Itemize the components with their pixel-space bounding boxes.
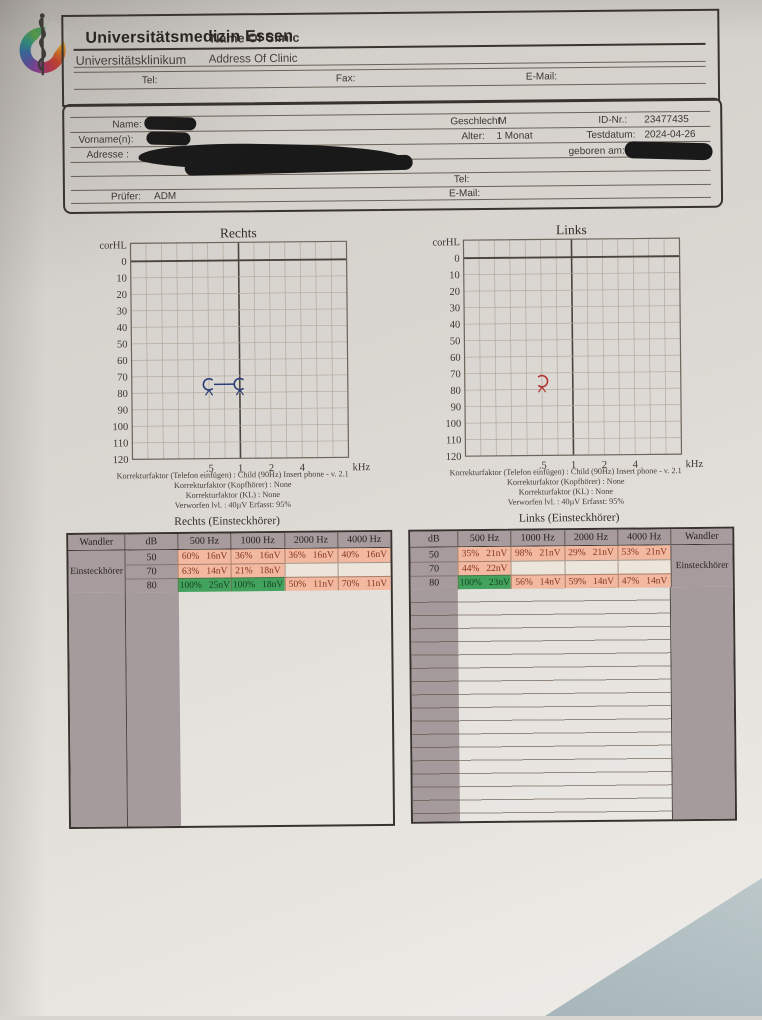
grid-v [238,242,240,458]
patient-tel-label: Tel: [454,174,470,185]
result-nv: 21nV [539,548,560,558]
result-cell [617,559,670,574]
grid-v [510,240,512,456]
result-cell: 100%23nV [458,575,511,590]
db-value: 80 [125,578,178,593]
y-tick-label: 100 [445,419,461,430]
grid-h [131,259,347,261]
grid-v [161,243,163,459]
name-redaction [144,117,196,131]
alter-label: Alter: [461,131,484,142]
pruefer-label: Prüfer: [111,191,141,202]
result-cell: 56%14nV [511,574,564,589]
chart-title: Links [556,224,587,238]
result-cell: 35%21nV [457,547,510,562]
grid-v [177,243,179,459]
wandler-header: Wandler [68,534,124,550]
geboren-redaction [624,141,712,160]
result-nv: 18nV [260,565,281,575]
result-nv: 14nV [593,576,614,586]
grid-v [494,240,496,456]
grid-h [464,256,680,258]
grid-v [602,239,604,455]
y-tick-label: 10 [449,270,460,281]
y-tick-label: 20 [116,290,127,301]
chart-title: Rechts [220,227,257,241]
result-cell: 36%16nV [231,549,284,564]
y-tick-label: 110 [446,435,461,446]
result-nv: 14nV [206,566,227,576]
y-axis-label: corHL [99,240,127,251]
grid-v [146,243,148,459]
table-body: 5035%21nV98%21nV29%21nV53%21nVEinsteckhö… [410,545,732,590]
threshold-symbol [234,378,243,389]
result-cell: 60%16nV [177,549,230,564]
grid-v [649,238,651,454]
y-tick-label: 0 [454,254,459,265]
y-tick-label: 120 [446,452,462,463]
clinic-header-box: Universitätsmedizin Essen Name Of Clinic… [61,9,720,107]
org-subtitle-overlay: Address Of Clinic [209,53,298,66]
result-cell [511,560,564,575]
result-cell: 53%21nV [617,545,670,560]
divider [71,184,711,191]
y-axis-label: corHL [432,237,460,248]
result-nv: 21nV [486,549,507,559]
result-pct: 21% [235,566,253,576]
empty-db-column [126,592,181,826]
grid-v [192,243,194,459]
y-tick-label: 120 [113,455,129,466]
result-cell: 44%22nV [458,561,511,576]
result-pct: 40% [341,550,359,560]
divider [71,170,711,177]
y-tick-label: 90 [450,402,461,413]
result-cell [564,560,617,575]
email-label: E-Mail: [526,71,557,82]
grid-v [208,243,210,459]
table-empty-area [411,587,735,822]
freq-header: 4000 Hz [617,529,670,545]
footnote-line: Verworfen lvl. : 40µV Erfasst: 95% [66,499,400,512]
empty-area [179,590,393,826]
result-pct: 70% [342,579,360,589]
result-cell: 59%14nV [564,574,617,589]
grid-v [316,242,318,458]
grid-v [556,239,558,455]
testdatum-label: Testdatum: [586,130,635,141]
db-value: 50 [410,547,457,561]
footnote-line: Verworfen lvl. : 40µV Erfasst: 95% [400,496,732,509]
empty-wandler-column [69,592,128,827]
tel-label: Tel: [142,75,158,86]
result-pct: 56% [515,577,533,587]
table-title-links: Links (Einsteckhörer) [408,511,730,526]
wandler-value: Einsteckhörer [68,550,124,593]
result-pct: 100% [233,580,255,590]
result-nv: 11nV [313,579,334,589]
alter-value: 1 Monat [496,131,532,142]
y-tick-label: 80 [450,386,461,397]
y-tick-label: 20 [449,287,460,298]
threshold-symbol [539,376,548,387]
result-pct: 63% [182,566,200,576]
result-nv: 23nV [489,577,510,587]
freq-header: 2000 Hz [284,532,337,548]
y-tick-label: 100 [112,422,128,433]
result-nv: 18nV [262,579,283,589]
patient-info-box: Name: Geschlecht M ID-Nr.: 23477435 Vorn… [62,98,723,214]
result-pct: 50% [289,579,307,589]
y-tick-label: 30 [450,303,461,314]
result-pct: 59% [569,577,587,587]
result-nv: 16nV [206,551,227,561]
result-pct: 29% [568,548,586,558]
id-label: ID-Nr.: [598,115,627,126]
geboren-label: geboren am: [569,146,625,158]
result-nv: 22nV [486,563,507,573]
y-tick-label: 60 [117,356,128,367]
threshold-symbol [203,379,212,390]
result-pct: 100% [460,578,482,588]
y-tick-label: 110 [113,438,128,449]
result-nv: 14nV [646,576,667,586]
y-tick-label: 80 [117,389,128,400]
result-pct: 36% [235,551,253,561]
grid-v [525,240,527,456]
footnotes-rechts: Korrekturfaktor (Telefon einfügen) : Chi… [66,469,400,512]
audiogram-rechts: 0102030405060708090100110120corHLRechts.… [97,227,399,480]
pruefer-value: ADM [154,191,176,202]
patient-email-label: E-Mail: [449,188,480,199]
y-tick-label: 30 [117,306,128,317]
result-cell: 63%14nV [178,563,231,578]
result-cell: 98%21nV [511,546,564,561]
grid-v [479,240,481,456]
result-pct: 100% [180,580,202,590]
grid-v [664,238,666,454]
empty-ruled-area [458,587,673,821]
freq-header: 4000 Hz [337,532,390,548]
audiogram-links: 0102030405060708090100110120corHLLinks.5… [430,224,732,477]
divider [74,83,706,90]
org-title-overlay: Name Of Clinic [210,31,299,46]
db-value: 70 [411,561,458,575]
result-pct: 60% [182,552,200,562]
grid-v [633,239,635,455]
db-header: dB [124,534,177,550]
result-nv: 16nV [366,550,387,560]
empty-db-column [411,589,460,821]
id-value: 23477435 [644,114,689,125]
result-pct: 98% [515,549,533,559]
results-table-links: dB500 Hz1000 Hz2000 Hz4000 HzWandler5035… [408,527,737,824]
y-tick-label: 70 [117,372,128,383]
result-cell: 47%14nV [617,573,670,588]
freq-header: 500 Hz [177,533,230,549]
vorname-redaction [146,131,190,145]
y-tick-label: 90 [118,405,129,416]
result-nv: 16nV [313,550,334,560]
result-pct: 53% [621,548,639,558]
grid-v [331,241,333,457]
result-nv: 21nV [646,547,667,557]
results-table-rechts: WandlerdB500 Hz1000 Hz2000 Hz4000 HzEins… [66,530,395,829]
result-cell: 100%25nV [178,577,231,592]
testdatum-value: 2024-04-26 [644,129,695,140]
grid-v [618,239,620,455]
result-nv: 14nV [540,577,561,587]
grid-v [285,242,287,458]
result-cell: 29%21nV [564,546,617,561]
freq-header: 500 Hz [457,531,510,547]
y-tick-label: 40 [117,323,128,334]
y-tick-label: 50 [117,339,128,350]
result-cell: 70%11nV [337,576,390,591]
y-tick-label: 40 [450,320,461,331]
result-pct: 35% [462,549,480,559]
db-value: 80 [411,575,458,589]
asclepius-staff-icon [30,11,55,81]
freq-header: 1000 Hz [230,533,283,549]
wandler-header: Wandler [670,529,732,545]
grid-v [541,239,543,455]
result-pct: 44% [462,564,480,574]
name-label: Name: [112,119,142,130]
table-title-rechts: Rechts (Einsteckhörer) [66,514,388,529]
fax-label: Fax: [336,73,356,84]
result-cell: 21%18nV [231,563,284,578]
table-empty-area [69,590,393,827]
result-cell [337,562,390,577]
y-tick-label: 0 [121,257,126,268]
adresse-label: Adresse : [87,149,129,160]
db-value: 70 [125,564,178,579]
grid-v [587,239,589,455]
y-tick-label: 60 [450,353,461,364]
y-tick-label: 10 [116,273,127,284]
empty-wandler-column [671,587,735,820]
grid-v [269,242,271,458]
result-cell: 50%11nV [284,576,337,591]
grid-v [254,242,256,458]
result-cell: 100%18nV [231,577,284,592]
vorname-label: Vorname(n): [78,134,133,146]
result-cell [284,562,337,577]
y-tick-label: 50 [450,336,461,347]
result-nv: 11nV [366,578,387,588]
grid-v [300,242,302,458]
db-value: 50 [124,550,177,565]
grid-v [571,239,573,455]
freq-header: 2000 Hz [564,530,617,546]
result-pct: 47% [622,576,640,586]
result-nv: 16nV [259,551,280,561]
freq-header: 1000 Hz [510,530,563,546]
result-pct: 36% [288,551,306,561]
geschlecht-label: Geschlecht [450,116,500,127]
footnotes-links: Korrekturfaktor (Telefon einfügen) : Chi… [400,466,732,509]
document-page: Universitätsmedizin Essen Name Of Clinic… [0,0,762,1020]
wandler-value: Einsteckhörer [670,545,732,588]
table-body: Einsteckhörer5060%16nV36%16nV36%16nV40%1… [68,548,390,593]
grid-v [223,243,225,459]
y-tick-label: 70 [450,369,461,380]
result-nv: 25nV [209,580,230,590]
geschlecht-value: M [498,116,506,127]
result-cell: 36%16nV [284,548,337,563]
db-header: dB [410,531,457,546]
result-nv: 21nV [593,548,614,558]
result-cell: 40%16nV [337,548,390,563]
